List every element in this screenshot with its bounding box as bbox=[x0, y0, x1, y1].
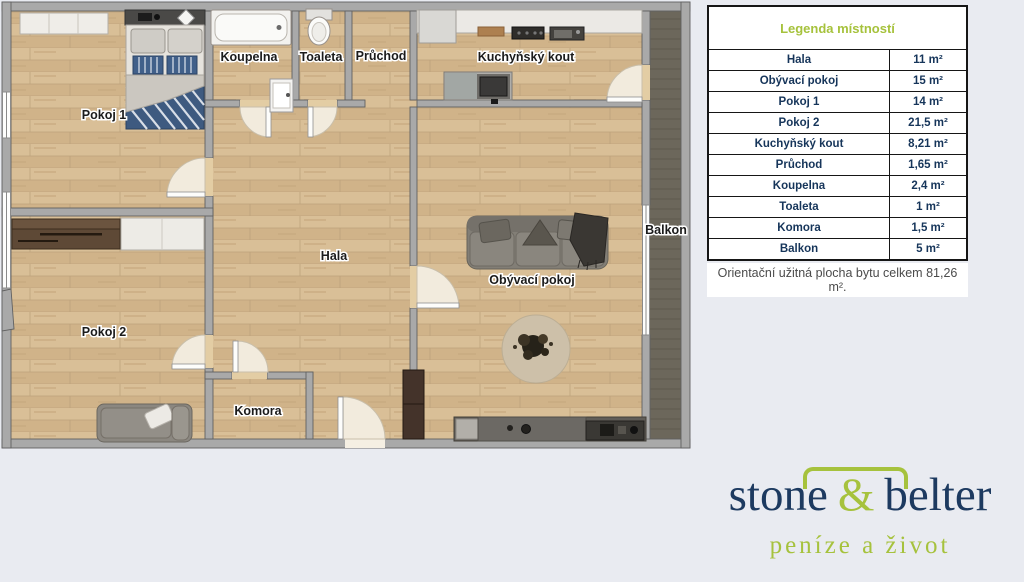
tv-console bbox=[454, 417, 646, 441]
room-label-komora: Komora bbox=[234, 404, 282, 418]
legend-room-area: 1,65 m² bbox=[890, 155, 968, 176]
room-label-balkon: Balkon bbox=[645, 223, 687, 237]
legend-room-name: Obývací pokoj bbox=[708, 71, 890, 92]
wardrobe bbox=[12, 219, 120, 249]
legend-room-area: 14 m² bbox=[890, 92, 968, 113]
room-label-kuchynsky-kout: Kuchyňský kout bbox=[478, 50, 575, 64]
legend-room-area: 11 m² bbox=[890, 50, 968, 71]
legend-room-name: Průchod bbox=[708, 155, 890, 176]
legend-row: Pokoj 2 21,5 m² bbox=[708, 113, 967, 134]
room-label-toaleta: Toaleta bbox=[300, 50, 344, 64]
legend-header-row: Legenda místností bbox=[708, 6, 967, 50]
legend-row: Obývací pokoj 15 m² bbox=[708, 71, 967, 92]
legend-room-name: Pokoj 1 bbox=[708, 92, 890, 113]
room-label-obyvaci-pokoj: Obývací pokoj bbox=[489, 273, 574, 287]
legend-title: Legenda místností bbox=[708, 6, 967, 50]
logo-word-stone: stone bbox=[729, 469, 828, 521]
sofa bbox=[467, 213, 608, 270]
legend-room-area: 1,5 m² bbox=[890, 218, 968, 239]
kitchen-island bbox=[444, 72, 512, 104]
legend-room-name: Balkon bbox=[708, 239, 890, 261]
rug-with-plant bbox=[502, 315, 570, 383]
floor-plan-image: Pokoj 1 Koupelna Toaleta Průchod Kuchyňs… bbox=[0, 0, 694, 452]
room-label-hala: Hala bbox=[321, 249, 348, 263]
toilet bbox=[306, 9, 332, 45]
legend-row: Hala 11 m² bbox=[708, 50, 967, 71]
logo-tagline: peníze a život bbox=[695, 532, 1024, 560]
closet bbox=[121, 218, 204, 250]
cutting-board bbox=[478, 27, 504, 36]
room-label-koupelna: Koupelna bbox=[221, 50, 279, 64]
bathtub bbox=[211, 10, 291, 45]
room-label-pruchod: Průchod bbox=[356, 49, 407, 63]
legend-room-area: 5 m² bbox=[890, 239, 968, 261]
legend-row: Komora 1,5 m² bbox=[708, 218, 967, 239]
bed bbox=[125, 10, 205, 129]
legend-room-area: 8,21 m² bbox=[890, 134, 968, 155]
dresser bbox=[20, 13, 108, 34]
logo-wordmark: stone&belter bbox=[695, 470, 1024, 522]
legend-row: Toaleta 1 m² bbox=[708, 197, 967, 218]
logo: stone&belter peníze a život bbox=[695, 452, 1024, 578]
hall-cabinet bbox=[403, 370, 424, 439]
legend-room-name: Kuchyňský kout bbox=[708, 134, 890, 155]
page: Pokoj 1 Koupelna Toaleta Průchod Kuchyňs… bbox=[0, 0, 1024, 582]
legend-row: Kuchyňský kout 8,21 m² bbox=[708, 134, 967, 155]
legend-room-name: Hala bbox=[708, 50, 890, 71]
legend-room-area: 2,4 m² bbox=[890, 176, 968, 197]
legend-row: Pokoj 1 14 m² bbox=[708, 92, 967, 113]
daybed bbox=[97, 403, 192, 442]
legend-room-area: 21,5 m² bbox=[890, 113, 968, 134]
legend-room-name: Koupelna bbox=[708, 176, 890, 197]
legend-table: Legenda místností Hala 11 m² Obývací pok… bbox=[707, 5, 968, 261]
legend-row: Koupelna 2,4 m² bbox=[708, 176, 967, 197]
legend-footer-note: Orientační užitná plocha bytu celkem 81,… bbox=[707, 263, 968, 297]
legend-row: Průchod 1,65 m² bbox=[708, 155, 967, 176]
legend-room-name: Komora bbox=[708, 218, 890, 239]
legend-room-area: 15 m² bbox=[890, 71, 968, 92]
logo-word-belter: belter bbox=[884, 469, 991, 521]
bathroom-sink bbox=[270, 79, 293, 112]
logo-ampersand-icon: & bbox=[838, 469, 875, 521]
room-label-pokoj1: Pokoj 1 bbox=[82, 108, 127, 122]
legend-room-area: 1 m² bbox=[890, 197, 968, 218]
legend-room-name: Pokoj 2 bbox=[708, 113, 890, 134]
entrance-opening bbox=[345, 439, 385, 448]
legend-row: Balkon 5 m² bbox=[708, 239, 967, 261]
room-label-pokoj2: Pokoj 2 bbox=[82, 325, 127, 339]
legend-room-name: Toaleta bbox=[708, 197, 890, 218]
legend-panel: Legenda místností Hala 11 m² Obývací pok… bbox=[707, 5, 968, 297]
